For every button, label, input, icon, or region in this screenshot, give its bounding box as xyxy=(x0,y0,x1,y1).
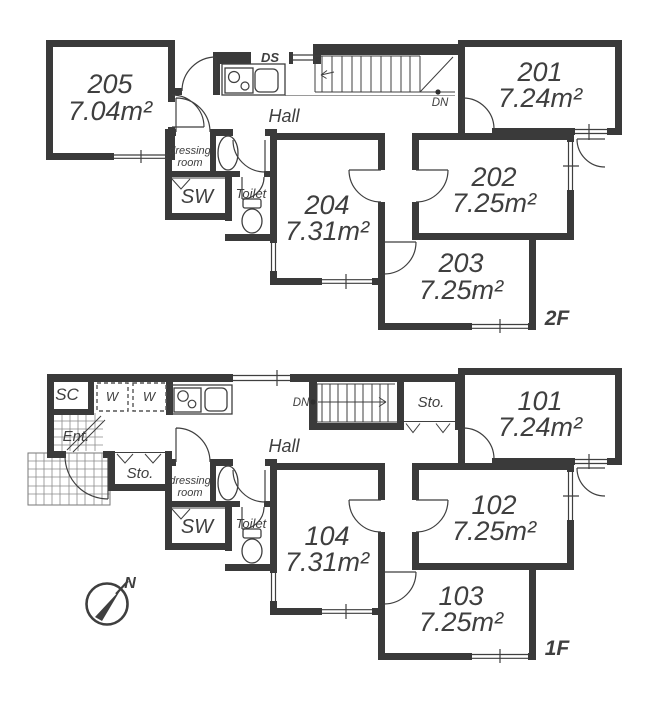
floor-2f: 205 7.04m² 201 7.24m² 202 7.25m² 203 7.2… xyxy=(46,40,622,333)
stairs-1f xyxy=(310,384,397,422)
room-203-area: 7.25m² xyxy=(419,275,504,305)
burner-icon-1f-1 xyxy=(178,391,188,401)
floor-plan-page: 205 7.04m² 201 7.24m² 202 7.25m² 203 7.2… xyxy=(0,0,652,700)
washer-label-left: W xyxy=(106,389,120,404)
burner-icon-1f-2 xyxy=(188,400,196,408)
ds-label-2f: DS xyxy=(261,50,279,65)
sc-label: SC xyxy=(55,385,79,404)
room-102-area: 7.25m² xyxy=(452,516,537,546)
dn-label-1f: DN xyxy=(293,397,310,409)
ent-label: Ent. xyxy=(63,428,90,445)
floor-label-1f: 1F xyxy=(545,637,571,660)
sink-icon-2f xyxy=(255,69,278,92)
burner-icon-2f-1 xyxy=(229,72,240,83)
room-101-area: 7.24m² xyxy=(498,412,583,442)
room-103-area: 7.25m² xyxy=(419,607,504,637)
room-202-area: 7.25m² xyxy=(452,188,537,218)
burner-icon-2f-2 xyxy=(241,82,249,90)
toilet-label-2f: Toilet xyxy=(236,186,268,201)
sink-icon-1f xyxy=(205,388,227,411)
stove-icon-1f xyxy=(174,388,201,412)
kitchen-1f xyxy=(171,385,232,414)
porch-tiles xyxy=(28,453,110,505)
dressing-room-label-2f-line1: dressing xyxy=(169,145,211,157)
kitchen-2f xyxy=(222,64,285,95)
storage-front-stairs-1f xyxy=(404,422,455,433)
floor-plan-drawing: 205 7.04m² 201 7.24m² 202 7.25m² 203 7.2… xyxy=(0,0,652,700)
dressing-room-label-1f-line2: room xyxy=(177,487,202,499)
hall-label-1f: Hall xyxy=(268,436,300,456)
room-204-area: 7.31m² xyxy=(285,216,370,246)
washer-label-right: W xyxy=(143,389,157,404)
stairs-landing-dot-2f xyxy=(435,89,440,94)
dressing-room-label-1f-line1: dressing xyxy=(169,475,211,487)
north-label: N xyxy=(124,575,136,592)
floor-label-2f: 2F xyxy=(544,307,571,330)
stairs-2f xyxy=(285,56,455,96)
room-201-area: 7.24m² xyxy=(498,83,583,113)
toilet-icon-2f xyxy=(242,199,262,233)
sto-label-entry: Sto. xyxy=(127,465,154,482)
compass: N xyxy=(87,575,137,625)
floor-1f: 101 7.24m² 102 7.25m² 103 7.25m² 104 7.3… xyxy=(28,368,622,663)
dn-label-2f: DN xyxy=(432,97,449,109)
toilet-icon-1f xyxy=(242,529,262,563)
storage-front-entry-1f xyxy=(115,453,165,464)
sto-label-stairs: Sto. xyxy=(418,394,445,411)
room-203-number: 203 xyxy=(437,248,483,278)
room-205-area: 7.04m² xyxy=(68,96,153,126)
hall-label-2f: Hall xyxy=(268,106,300,126)
stairs-landing-dot-1f xyxy=(310,399,315,404)
toilet-label-1f: Toilet xyxy=(236,516,268,531)
room-205-number: 205 xyxy=(86,69,133,99)
sw-label-2f: SW xyxy=(181,186,215,208)
dressing-room-label-2f-line2: room xyxy=(177,157,202,169)
room-104-area: 7.31m² xyxy=(285,547,370,577)
sw-label-1f: SW xyxy=(181,516,215,538)
